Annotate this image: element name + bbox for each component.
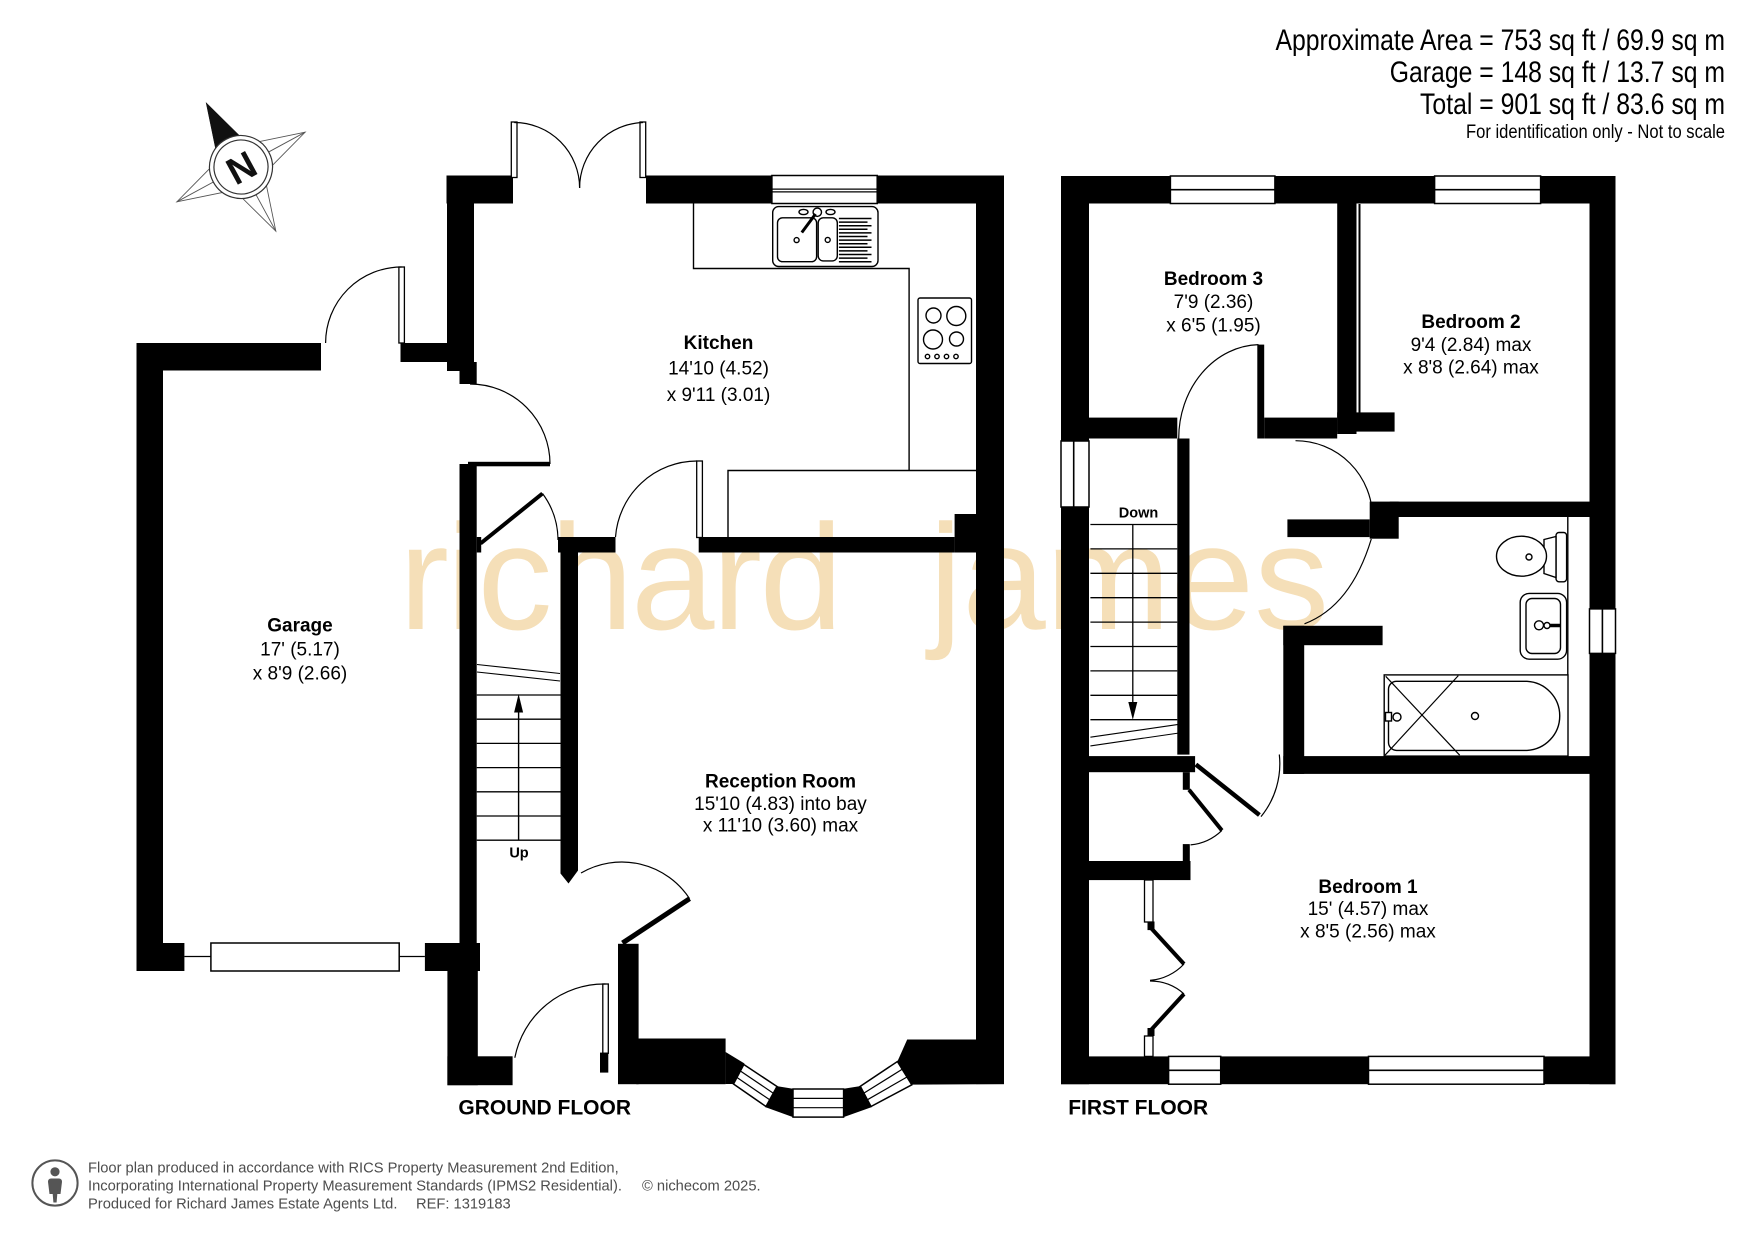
svg-text:x 11'10 (3.60) max: x 11'10 (3.60) max <box>703 816 859 837</box>
svg-text:15'10 (4.83) into bay: 15'10 (4.83) into bay <box>694 794 867 815</box>
svg-text:Kitchen: Kitchen <box>684 333 754 354</box>
svg-text:Bedroom 3: Bedroom 3 <box>1164 269 1263 290</box>
svg-text:15' (4.57) max: 15' (4.57) max <box>1308 899 1429 920</box>
svg-text:FIRST FLOOR: FIRST FLOOR <box>1068 1097 1208 1120</box>
svg-text:Up: Up <box>509 846 528 862</box>
svg-text:Bedroom 1: Bedroom 1 <box>1318 877 1418 898</box>
svg-text:Incorporating International Pr: Incorporating International Property Mea… <box>88 1179 622 1195</box>
svg-text:x 9'11 (3.01): x 9'11 (3.01) <box>667 385 771 406</box>
svg-text:REF: 1319183: REF: 1319183 <box>416 1197 511 1213</box>
svg-text:14'10 (4.52): 14'10 (4.52) <box>668 359 769 380</box>
svg-text:9'4 (2.84) max: 9'4 (2.84) max <box>1411 335 1532 356</box>
svg-text:Approximate Area = 753 sq ft /: Approximate Area = 753 sq ft / 69.9 sq m <box>1275 23 1725 57</box>
svg-text:GROUND FLOOR: GROUND FLOOR <box>458 1097 631 1120</box>
svg-text:Bedroom 2: Bedroom 2 <box>1421 312 1520 333</box>
svg-text:x 8'8 (2.64) max: x 8'8 (2.64) max <box>1403 358 1539 379</box>
svg-text:For identification only - Not: For identification only - Not to scale <box>1466 121 1725 142</box>
svg-text:Floor plan produced in accorda: Floor plan produced in accordance with R… <box>88 1161 619 1177</box>
svg-text:x 8'9 (2.66): x 8'9 (2.66) <box>253 664 347 685</box>
svg-text:Down: Down <box>1119 506 1158 522</box>
svg-text:Garage = 148 sq ft / 13.7 sq m: Garage = 148 sq ft / 13.7 sq m <box>1390 55 1725 89</box>
svg-text:Reception Room: Reception Room <box>705 772 856 793</box>
svg-text:7'9 (2.36): 7'9 (2.36) <box>1174 292 1254 313</box>
svg-text:Produced for Richard James Est: Produced for Richard James Estate Agents… <box>88 1197 397 1213</box>
svg-text:17' (5.17): 17' (5.17) <box>260 640 340 661</box>
svg-text:x 6'5 (1.95): x 6'5 (1.95) <box>1166 316 1260 337</box>
svg-text:x 8'5 (2.56) max: x 8'5 (2.56) max <box>1300 922 1436 943</box>
svg-text:Garage: Garage <box>267 616 332 637</box>
svg-text:© nichecom 2025.: © nichecom 2025. <box>642 1179 761 1195</box>
svg-text:Total = 901 sq ft / 83.6 sq m: Total = 901 sq ft / 83.6 sq m <box>1420 87 1725 121</box>
